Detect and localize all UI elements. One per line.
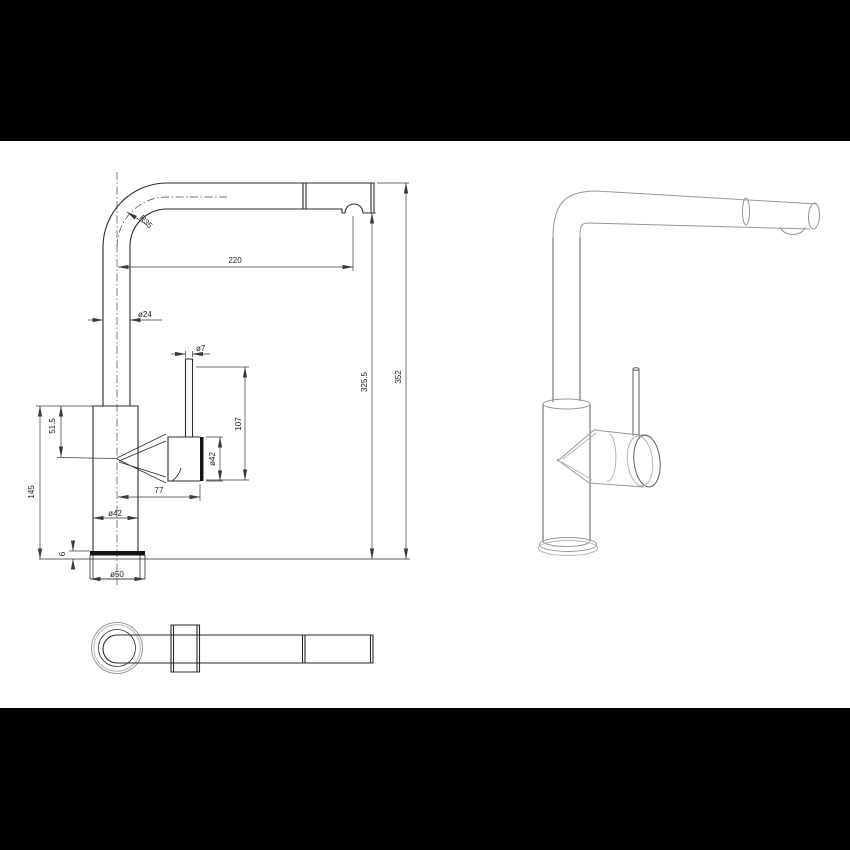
cartridge-detail-arc — [172, 468, 181, 481]
base-circle-outer — [92, 623, 143, 674]
copyright-notice: Copyright @ 2025 My Depot Australia. Thi… — [385, 795, 839, 850]
spout-end-cap — [371, 183, 374, 213]
pullout-joint-lines — [303, 183, 306, 209]
spout-centerline — [117, 197, 228, 247]
dim-label-107: 107 — [234, 417, 243, 431]
spout-bottom-3d — [580, 223, 810, 238]
perspective-view — [539, 191, 821, 556]
handle-rod-cap-3d — [633, 368, 639, 371]
dim-label-352: 352 — [394, 370, 403, 384]
front-view: 220 R35 ø24 ø7 — [27, 172, 410, 585]
dim-label-51-5: 51.5 — [48, 418, 57, 434]
spout-end-plan — [371, 635, 374, 663]
cartridge-cylinder-3d — [589, 430, 649, 487]
pullout-joint-plan — [303, 635, 306, 663]
spout-top-3d — [553, 191, 817, 238]
dim-label-77: 77 — [155, 486, 164, 495]
spout-inner-outline — [130, 204, 374, 406]
dim-label-6: 6 — [58, 551, 67, 556]
dim-label-d50: ø50 — [110, 570, 124, 579]
dim-label-d42-body: ø42 — [108, 509, 122, 518]
body-outline — [93, 406, 138, 551]
cartridge-cone-3d — [557, 430, 594, 483]
cartridge-cap-inner-3d — [625, 435, 655, 487]
faucet-drawing-page: 220 R35 ø24 ø7 — [0, 0, 850, 850]
spout-end-3d — [808, 203, 820, 230]
dimension-d42-cartridge: ø42 — [206, 437, 223, 481]
dimension-325-5: 325.5 — [360, 213, 376, 559]
dimension-352: 352 — [377, 183, 409, 559]
dimension-107: 107 — [196, 367, 249, 480]
body-3d — [543, 404, 590, 541]
cartridge-plan-outline — [171, 625, 200, 672]
cartridge-cylinder — [168, 437, 200, 481]
dim-label-d24: ø24 — [138, 310, 152, 319]
dim-label-145: 145 — [27, 485, 36, 499]
cartridge-cone — [117, 434, 166, 483]
handle-rod — [186, 359, 193, 437]
dimension-r35: R35 — [127, 212, 155, 231]
cartridge-cap — [200, 437, 204, 481]
dimension-145: 145 — [27, 406, 93, 559]
dimension-77: 77 — [118, 484, 200, 501]
base-flange-lower-3d — [539, 541, 598, 556]
dimension-6: 6 — [58, 543, 90, 567]
dimension-d24: ø24 — [88, 310, 162, 320]
riser-3d — [553, 238, 580, 402]
dim-label-220: 220 — [228, 256, 242, 265]
top-view — [92, 623, 374, 674]
cartridge-back-rim-3d — [607, 434, 616, 481]
cartridge-cone-inner-3d — [562, 433, 596, 480]
body-top-rim-3d — [543, 399, 590, 409]
pullout-joint-3d — [743, 198, 750, 225]
dim-label-r35: R35 — [138, 213, 155, 230]
handle-rod-3d — [633, 369, 639, 437]
dim-label-d42-cartridge: ø42 — [208, 452, 217, 466]
dimension-51-5: 51.5 — [48, 406, 117, 459]
base-flange — [90, 551, 145, 556]
dimension-d7: ø7 — [171, 344, 210, 357]
dim-label-d7: ø7 — [196, 344, 206, 353]
dim-label-325-5: 325.5 — [360, 371, 369, 392]
spout-plan-outline — [103, 635, 373, 663]
dimension-d50: ø50 — [90, 570, 145, 579]
dimension-d42-body: ø42 — [93, 509, 138, 518]
base-circle-inner — [94, 625, 140, 671]
